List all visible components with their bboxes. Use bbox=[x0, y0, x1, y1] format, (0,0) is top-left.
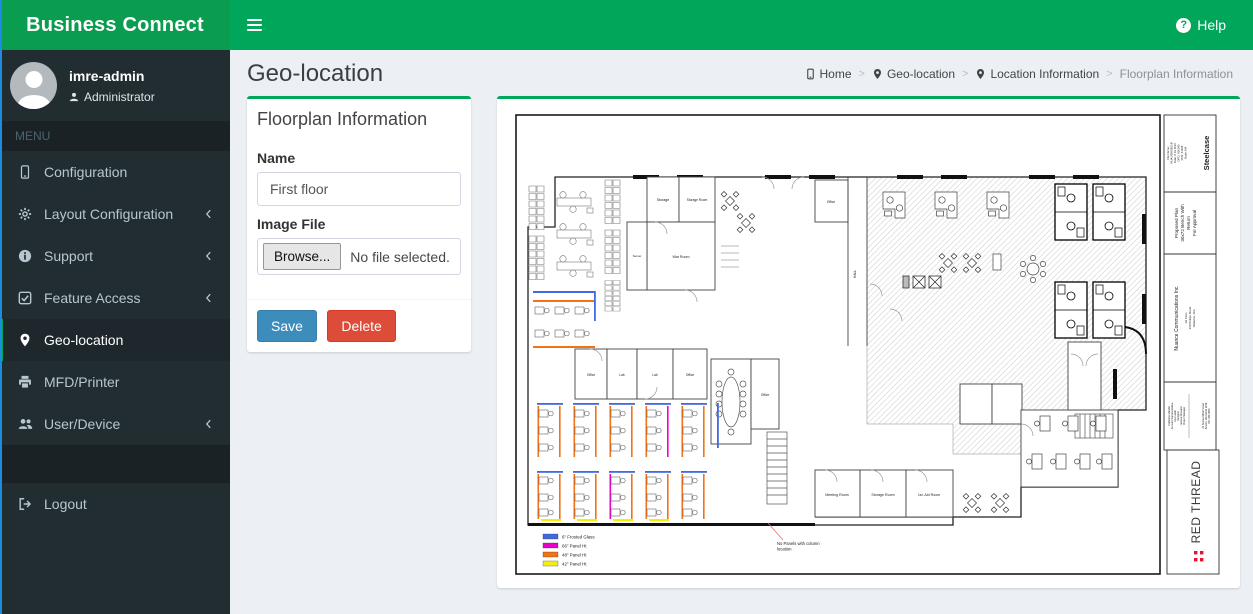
avatar bbox=[10, 62, 57, 109]
name-label: Name bbox=[257, 150, 461, 166]
room-label-lab: Lab bbox=[652, 373, 658, 377]
tablet-icon bbox=[805, 68, 816, 80]
legend-label: 66" Panel Ht bbox=[562, 544, 587, 549]
room-label-office: Office bbox=[761, 393, 769, 397]
svg-text:For Approval: For Approval bbox=[1192, 210, 1197, 236]
main-header: Business Connect ? Help bbox=[0, 0, 1253, 50]
map-marker-icon bbox=[16, 333, 34, 347]
breadcrumb-home[interactable]: Home bbox=[805, 67, 852, 81]
legend-label: 6" Frosted Glass bbox=[562, 535, 595, 540]
breadcrumb: Home > Geo-location > Location Informati… bbox=[805, 67, 1234, 81]
breadcrumb-separator: > bbox=[962, 68, 968, 80]
image-file-label: Image File bbox=[257, 216, 461, 232]
map-marker-icon bbox=[872, 68, 883, 80]
window-edge-strip bbox=[0, 0, 2, 614]
breadcrumb-geo-location[interactable]: Geo-location bbox=[872, 67, 955, 81]
legend-label: 42" Panel Ht bbox=[562, 562, 587, 567]
floorplan-card: Storage Storage Room War Room Server Off… bbox=[497, 96, 1240, 588]
user-panel: imre-admin Administrator bbox=[0, 50, 230, 121]
chevron-left-icon bbox=[203, 250, 214, 262]
red-thread-logo-mark bbox=[1194, 551, 1203, 561]
file-status-text: No file selected. bbox=[350, 249, 450, 265]
room-label-meeting-room: Meeting Room bbox=[825, 493, 848, 497]
map-marker-icon bbox=[975, 68, 986, 80]
room-label-hall: HALL bbox=[853, 270, 857, 279]
content-area: Geo-location Home > Geo-location > Locat… bbox=[230, 50, 1253, 614]
legend-swatch bbox=[543, 552, 558, 557]
sidebar-item-label: Geo-location bbox=[44, 332, 123, 348]
room-label-storage: Storage bbox=[657, 198, 670, 202]
users-icon bbox=[16, 417, 34, 431]
title-block: File Name: NUA-XBASE01B Date: 8 19 2016 … bbox=[1164, 115, 1219, 574]
user-icon bbox=[69, 92, 79, 102]
navbar: ? Help bbox=[230, 0, 1253, 50]
breadcrumb-current: Floorplan Information bbox=[1120, 67, 1233, 81]
chevron-left-icon bbox=[203, 208, 214, 220]
chevron-left-icon bbox=[203, 292, 214, 304]
svg-text:Waterloo, Ont.: Waterloo, Ont. bbox=[1192, 309, 1196, 328]
help-link[interactable]: ? Help bbox=[1149, 0, 1253, 50]
help-label: Help bbox=[1197, 17, 1226, 33]
stairs bbox=[767, 432, 787, 504]
user-name: imre-admin bbox=[69, 68, 155, 84]
save-button[interactable]: Save bbox=[257, 310, 317, 342]
svg-text:Proposed Plan: Proposed Plan bbox=[1174, 207, 1179, 238]
tablet-icon bbox=[16, 165, 34, 179]
room-label-storage-room-2: Storage Room bbox=[871, 493, 894, 497]
sidebar-item-label: Feature Access bbox=[44, 290, 141, 306]
brand-logo[interactable]: Business Connect bbox=[0, 0, 230, 50]
browse-button[interactable]: Browse... bbox=[263, 243, 341, 270]
name-input[interactable] bbox=[257, 172, 461, 206]
hamburger-icon bbox=[247, 16, 262, 34]
chevron-left-icon bbox=[203, 418, 214, 430]
sidebar-item-logout[interactable]: Logout bbox=[0, 483, 230, 525]
sidebar-menu: Configuration Layout Configuration Suppo… bbox=[0, 151, 230, 445]
check-square-icon bbox=[16, 291, 34, 305]
info-icon bbox=[16, 249, 34, 263]
room-label-lab: Lab bbox=[619, 373, 625, 377]
svg-text:617 439 4900: 617 439 4900 bbox=[1208, 408, 1211, 424]
sidebar: imre-admin Administrator MENU Configurat… bbox=[0, 50, 230, 614]
sidebar-item-user-device[interactable]: User/Device bbox=[0, 403, 230, 445]
legend-label: 48" Panel Ht bbox=[562, 553, 587, 558]
svg-text:location: location bbox=[777, 547, 792, 552]
svg-text:Return: Return bbox=[1186, 216, 1191, 230]
menu-divider bbox=[0, 445, 230, 483]
sidebar-item-configuration[interactable]: Configuration bbox=[0, 151, 230, 193]
printer-icon bbox=[16, 375, 34, 389]
svg-text:30x72 Bench With: 30x72 Bench With bbox=[1180, 204, 1185, 242]
sidebar-item-label: MFD/Printer bbox=[44, 374, 119, 390]
gear-icon bbox=[16, 207, 34, 221]
sidebar-item-label: Support bbox=[44, 248, 93, 264]
sidebar-item-support[interactable]: Support bbox=[0, 235, 230, 277]
room-label-storage-room: Storage Room bbox=[687, 198, 708, 202]
breadcrumb-separator: > bbox=[859, 68, 865, 80]
breadcrumb-separator: > bbox=[1106, 68, 1112, 80]
room-label-office: Office bbox=[686, 373, 694, 377]
legend-swatch bbox=[543, 543, 558, 548]
sign-out-icon bbox=[16, 497, 34, 511]
sidebar-item-layout-configuration[interactable]: Layout Configuration bbox=[0, 193, 230, 235]
sidebar-item-label: Layout Configuration bbox=[44, 206, 173, 222]
legend-swatch bbox=[543, 561, 558, 566]
room-label-office: Office bbox=[587, 373, 595, 377]
help-icon: ? bbox=[1176, 18, 1191, 33]
breadcrumb-location-information[interactable]: Location Information bbox=[975, 67, 1099, 81]
menu-header: MENU bbox=[0, 121, 230, 151]
legend-swatch bbox=[543, 534, 558, 539]
floorplan-form-card: Floorplan Information Name Image File Br… bbox=[247, 96, 471, 352]
floorplan-image: Storage Storage Room War Room Server Off… bbox=[515, 114, 1221, 575]
red-thread-logo-text: RED THREAD bbox=[1189, 461, 1203, 544]
svg-text:Scale: NA: Scale: NA bbox=[1184, 147, 1188, 160]
svg-text:No Panels with column: No Panels with column bbox=[777, 541, 820, 546]
panel-title: Floorplan Information bbox=[257, 109, 461, 130]
image-file-input[interactable]: Browse... No file selected. bbox=[257, 238, 461, 275]
room-label-server: Server bbox=[633, 254, 642, 258]
sidebar-toggle-button[interactable] bbox=[230, 0, 279, 50]
room-label-office: Office bbox=[827, 200, 835, 204]
delete-button[interactable]: Delete bbox=[327, 310, 395, 342]
svg-text:Project Manager: Project Manager bbox=[1183, 407, 1186, 426]
sidebar-item-label: Configuration bbox=[44, 164, 127, 180]
client-name: Nuance Communications Inc. bbox=[1174, 285, 1180, 350]
sidebar-item-label: User/Device bbox=[44, 416, 120, 432]
user-role: Administrator bbox=[84, 90, 155, 104]
room-label-war-room: War Room bbox=[672, 255, 689, 259]
sidebar-item-mfd-printer[interactable]: MFD/Printer bbox=[0, 361, 230, 403]
sidebar-item-label: Logout bbox=[44, 496, 87, 512]
sidebar-item-geo-location[interactable]: Geo-location bbox=[0, 319, 230, 361]
steelcase-logo: Steelcase bbox=[1202, 136, 1211, 171]
page-title: Geo-location bbox=[247, 60, 383, 88]
room-label-first-aid: 1st. Aid Room bbox=[918, 493, 940, 497]
sidebar-item-feature-access[interactable]: Feature Access bbox=[0, 277, 230, 319]
